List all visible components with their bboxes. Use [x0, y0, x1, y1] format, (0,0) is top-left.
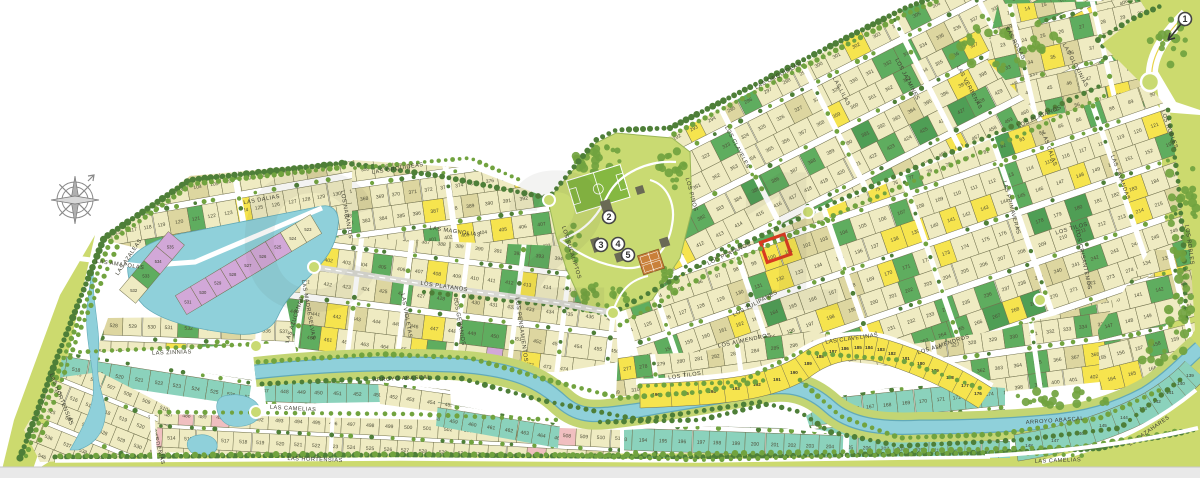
svg-text:524: 524	[347, 445, 356, 451]
svg-text:168: 168	[883, 402, 892, 409]
svg-text:281: 281	[694, 356, 703, 363]
svg-text:333: 333	[1063, 326, 1072, 333]
svg-text:194: 194	[639, 438, 648, 444]
svg-text:449: 449	[297, 390, 306, 396]
svg-text:191: 191	[773, 377, 781, 382]
svg-text:330: 330	[1009, 334, 1018, 341]
svg-text:366: 366	[1053, 357, 1062, 364]
svg-text:277: 277	[623, 366, 632, 373]
svg-text:530: 530	[147, 324, 156, 330]
svg-text:282: 282	[711, 353, 720, 360]
svg-text:197: 197	[697, 440, 706, 446]
svg-text:189: 189	[804, 361, 812, 366]
svg-text:529: 529	[128, 324, 137, 330]
svg-text:498: 498	[366, 423, 375, 429]
svg-text:493: 493	[275, 418, 284, 424]
svg-text:198: 198	[713, 440, 722, 446]
svg-text:400: 400	[1051, 379, 1060, 386]
svg-text:201: 201	[771, 442, 780, 448]
svg-text:169: 169	[902, 400, 911, 407]
svg-text:519: 519	[256, 440, 265, 446]
svg-text:529: 529	[214, 281, 222, 286]
svg-text:521: 521	[294, 442, 303, 448]
svg-text:328: 328	[968, 339, 977, 346]
svg-text:204: 204	[826, 444, 835, 450]
svg-text:510: 510	[597, 435, 606, 441]
svg-text:195: 195	[659, 438, 668, 444]
svg-text:452: 452	[353, 392, 362, 398]
svg-text:525: 525	[366, 446, 375, 452]
svg-text:199: 199	[732, 441, 741, 447]
svg-text:448: 448	[280, 389, 289, 395]
svg-text:170: 170	[919, 398, 928, 405]
svg-text:334: 334	[1079, 324, 1088, 331]
svg-text:364: 364	[1013, 362, 1022, 369]
svg-text:450: 450	[314, 390, 323, 396]
svg-text:147: 147	[1051, 438, 1059, 443]
svg-text:190: 190	[790, 370, 798, 375]
svg-text:517: 517	[221, 438, 230, 444]
svg-text:362: 362	[977, 367, 986, 374]
svg-text:531: 531	[184, 299, 192, 304]
svg-text:520: 520	[276, 441, 285, 447]
svg-text:401: 401	[1069, 377, 1078, 384]
svg-text:203: 203	[806, 443, 815, 449]
svg-text:367: 367	[1071, 354, 1080, 361]
svg-text:494: 494	[294, 419, 303, 425]
svg-text:279: 279	[657, 361, 666, 368]
svg-text:196: 196	[678, 439, 687, 445]
svg-text:200: 200	[751, 441, 760, 447]
svg-text:514: 514	[167, 435, 176, 441]
svg-text:531: 531	[164, 325, 173, 331]
svg-text:500: 500	[404, 425, 413, 431]
svg-text:530: 530	[199, 290, 207, 295]
svg-text:176: 176	[974, 391, 982, 396]
svg-text:497: 497	[347, 422, 356, 428]
svg-text:533: 533	[142, 273, 150, 278]
svg-text:535: 535	[167, 244, 175, 249]
svg-text:332: 332	[1046, 328, 1055, 335]
svg-text:402: 402	[1090, 374, 1099, 381]
svg-text:202: 202	[788, 443, 797, 449]
svg-text:329: 329	[988, 337, 997, 344]
svg-text:508: 508	[563, 433, 572, 439]
svg-text:473: 473	[543, 364, 552, 371]
svg-text:171: 171	[936, 396, 945, 403]
svg-text:522: 522	[312, 443, 321, 449]
svg-text:532: 532	[130, 288, 138, 293]
svg-text:280: 280	[676, 358, 685, 365]
svg-text:454: 454	[427, 399, 436, 406]
svg-text:278: 278	[639, 363, 648, 370]
svg-text:495: 495	[312, 420, 321, 426]
svg-text:509: 509	[580, 434, 589, 440]
svg-text:453: 453	[406, 396, 415, 403]
svg-text:518: 518	[239, 439, 248, 445]
svg-text:452: 452	[389, 394, 398, 401]
svg-text:451: 451	[333, 391, 342, 397]
svg-text:363: 363	[994, 365, 1003, 372]
svg-text:499: 499	[385, 424, 394, 430]
svg-text:528: 528	[109, 323, 118, 329]
svg-text:501: 501	[423, 426, 432, 432]
svg-text:534: 534	[155, 259, 163, 264]
svg-text:368: 368	[1091, 351, 1100, 358]
